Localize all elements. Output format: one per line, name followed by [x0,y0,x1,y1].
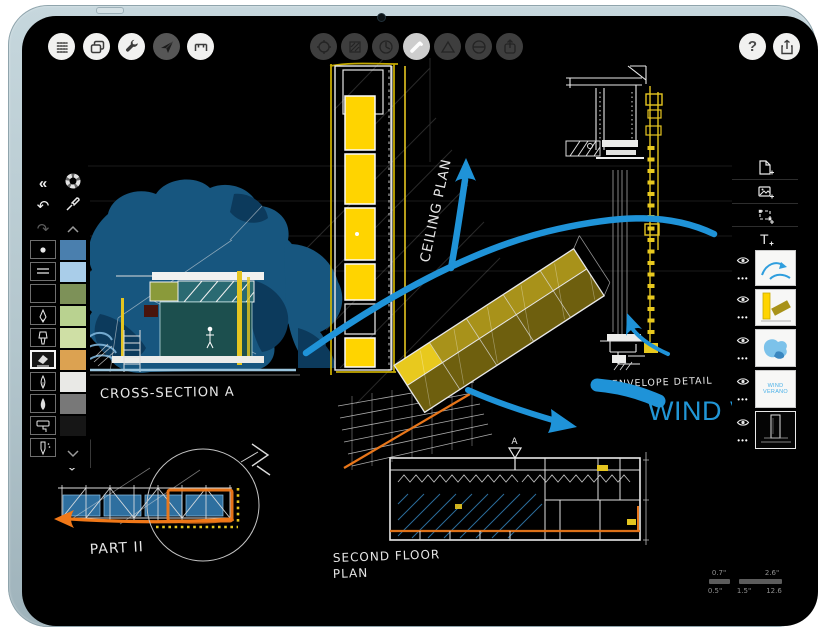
add-selection-icon [756,207,775,225]
export-tool-button[interactable] [496,33,523,60]
tool-marker[interactable] [30,328,56,347]
add-text-icon: T [756,230,775,248]
soft-pencil-icon [33,242,53,258]
guide-tool-button[interactable] [372,33,399,60]
color-wheel-icon [64,172,82,190]
palette-chevron-down[interactable] [60,444,86,462]
marker-icon [33,330,53,346]
more-options-icon[interactable]: ••• [733,313,753,323]
svg-text:T: T [760,231,769,247]
brush-color-palette: « ↶ ↷ [28,168,90,468]
scale-minor-bar [709,579,730,584]
move-tool-button[interactable] [310,33,337,60]
roof-detail-drawing [566,66,646,158]
shape-tool-button[interactable] [434,33,461,60]
thumb-yellow-sketch [756,290,795,325]
paint-roller-icon [33,418,53,434]
eraser-icon [33,352,53,368]
paper-plane-icon [158,38,176,56]
second-floor-label-2: PLAN [333,566,369,581]
fountain-pen-icon [33,374,53,390]
collapse-palette-button[interactable]: « [30,174,56,192]
thumb-blue-arrows [756,251,795,285]
scale-major-bottom-right: 12.6 [760,587,788,595]
move-rotate-icon [315,38,333,56]
hatch-fill-icon [346,38,364,56]
tool-technical-pen[interactable] [30,306,56,325]
slice-circle-icon [470,38,488,56]
part-label: PART II [89,539,144,558]
measure-button[interactable] [187,33,214,60]
swatch-olive[interactable] [60,284,86,304]
ipad-marketing-shot: CROSS-SECTION A CEILING PLAN [0,0,824,632]
wrench-icon [123,38,141,56]
settings-button[interactable] [118,33,145,60]
chevron-up-icon [64,223,82,235]
more-options-icon[interactable]: ••• [733,354,753,364]
tool-chisel-tip[interactable] [30,262,56,281]
pan-mode-button[interactable] [153,33,180,60]
layers-panel: T ••• ••• ••• ••• [732,150,798,460]
add-selection-button[interactable] [742,205,788,227]
add-image-icon [756,183,775,201]
layer-thumbnail-text[interactable]: WIND VERANO [755,370,796,408]
thumb-blue-wash [756,330,795,366]
layer-thumbnail-arrows[interactable] [755,250,796,286]
add-image-button[interactable] [742,181,788,203]
more-options-icon[interactable]: ••• [733,274,753,284]
redo-button[interactable]: ↷ [30,220,56,238]
swatch-blue[interactable] [60,240,86,260]
scale-major-bottom-left: 1.5" [731,587,757,595]
swatch-white[interactable] [60,372,86,392]
share-up-arrow-icon [778,38,796,56]
tool-paint-roller[interactable] [30,416,56,435]
thumb-line-art [756,412,795,448]
airbrush-icon [33,440,53,456]
color-wheel-button[interactable] [60,172,86,190]
layer-thumbnail-yellow[interactable] [755,289,796,326]
slice-tool-button[interactable] [465,33,492,60]
scale-major-bar [739,579,782,584]
second-floor-label-1: SECOND FLOOR [333,547,441,565]
pen-stroke-icon [407,37,426,56]
cross-section-drawing: CROSS-SECTION A [60,179,342,402]
swatch-black[interactable] [60,416,86,436]
swatch-orange[interactable] [60,350,86,370]
eye-icon[interactable] [734,375,752,388]
duplicate-pages-icon [88,38,106,56]
pages-button[interactable] [83,33,110,60]
help-button[interactable]: ? [739,33,766,60]
scale-minor-bottom: 0.5" [702,587,728,595]
eye-icon[interactable] [734,254,752,267]
palette-chevron-up[interactable] [60,220,86,238]
swatch-gray[interactable] [60,394,86,414]
add-page-button[interactable] [742,157,788,179]
tool-eraser[interactable] [30,350,56,369]
fill-tool-button[interactable] [341,33,368,60]
scale-minor-top: 0.7" [706,569,732,577]
swatch-pale-green[interactable] [60,328,86,348]
technical-pen-icon [33,308,53,324]
scale-major-top: 2.6" [757,569,787,577]
add-text-button[interactable]: T [742,228,788,250]
floor-plan-drawing: A SECOND FLOOR PLAN [333,437,649,581]
tool-fountain-pen[interactable] [30,372,56,391]
share-button[interactable] [773,33,800,60]
export-arrow-icon [501,38,519,56]
paint-brush-icon [33,396,53,412]
eye-icon[interactable] [734,334,752,347]
layer-text-preview: WIND VERANO [756,383,795,395]
swatch-light-blue[interactable] [60,262,86,282]
compass-icon [377,38,395,56]
canvas-artwork: CROSS-SECTION A CEILING PLAN [0,0,824,632]
help-glyph: ? [748,38,757,55]
chisel-tip-icon [33,264,53,280]
section-marker-a: A [511,437,518,447]
dot-grid-icon [53,38,71,56]
more-options-icon[interactable]: ••• [733,395,753,405]
cross-section-label: CROSS-SECTION A [100,385,235,402]
undo-button[interactable]: ↶ [30,197,56,215]
tool-empty-slot[interactable] [30,284,56,303]
triangle-ruler-icon [439,38,457,56]
eyedropper-button[interactable] [60,195,86,213]
tool-airbrush[interactable] [30,438,56,457]
chevron-down-icon [64,447,82,459]
envelope-detail-drawing: ENVELOPE DETAIL [600,86,713,390]
eye-icon[interactable] [734,293,752,306]
measure-frame-icon [192,38,210,56]
more-options-icon[interactable]: ••• [733,436,753,446]
eyedropper-icon [64,195,82,213]
tool-soft-pencil[interactable] [30,240,56,259]
add-page-icon [756,159,775,177]
ceiling-plan-label: CEILING PLAN [417,157,455,264]
layer-thumbnail-blue-wash[interactable] [755,329,796,367]
eye-icon[interactable] [734,416,752,429]
ceiling-plan-tower: CEILING PLAN [330,64,455,376]
snap-grid-button[interactable] [48,33,75,60]
layer-thumbnail-line-art[interactable] [755,411,796,449]
tool-paint-brush[interactable] [30,394,56,413]
pen-tool-button[interactable] [403,33,430,60]
swatch-light-green[interactable] [60,306,86,326]
